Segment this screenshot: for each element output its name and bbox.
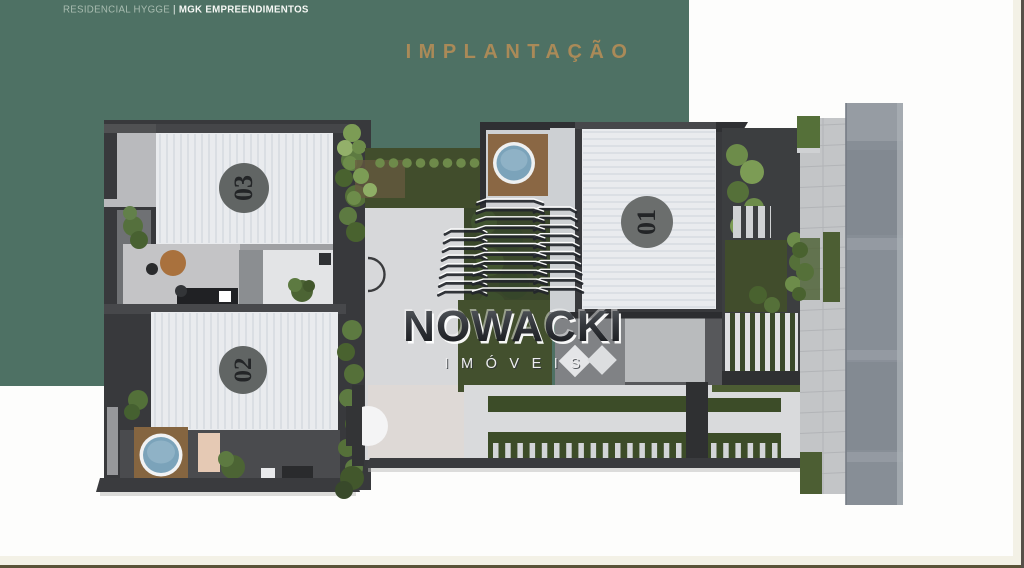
svg-text:IMÓVEIS: IMÓVEIS (445, 355, 593, 372)
svg-text:03: 03 (229, 175, 258, 201)
svg-text:02: 02 (230, 358, 257, 383)
svg-text:RESIDENCIAL HYGGE | MGK EMPREE: RESIDENCIAL HYGGE | MGK EMPREENDIMENTOS (63, 5, 309, 16)
svg-text:NOWACKI: NOWACKI (403, 302, 623, 351)
svg-text:01: 01 (632, 209, 661, 235)
svg-text:IMPLANTAÇÃO: IMPLANTAÇÃO (406, 40, 635, 63)
